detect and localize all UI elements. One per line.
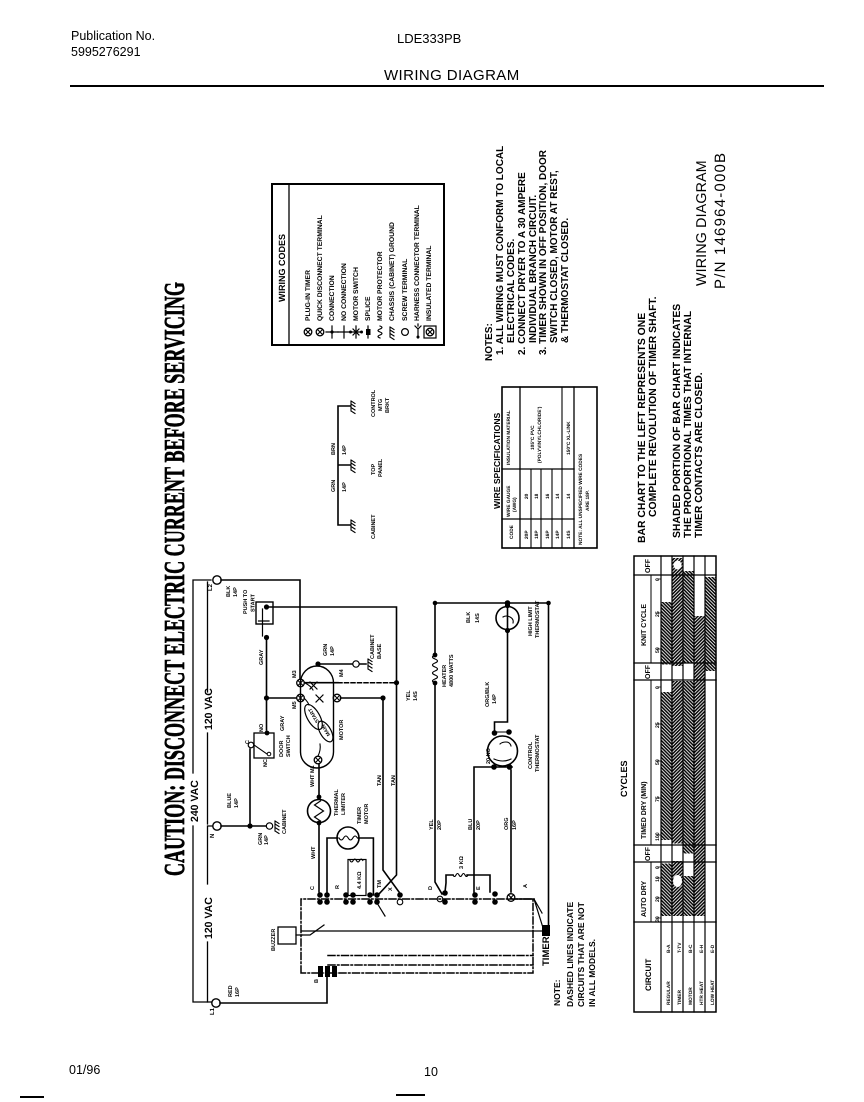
svg-text:E-H: E-H bbox=[699, 944, 705, 953]
svg-text:20P: 20P bbox=[476, 820, 482, 830]
svg-text:14P: 14P bbox=[233, 587, 239, 597]
svg-text:START: START bbox=[308, 707, 321, 724]
svg-text:BLK: BLK bbox=[466, 612, 472, 623]
svg-text:INSULATION MATERIAL: INSULATION MATERIAL bbox=[506, 410, 512, 465]
svg-text:HARNESS CONNECTOR TERMINAL: HARNESS CONNECTOR TERMINAL bbox=[414, 205, 421, 321]
svg-text:M3: M3 bbox=[292, 670, 298, 678]
svg-text:BLK: BLK bbox=[226, 586, 232, 597]
svg-text:CIRCUIT: CIRCUIT bbox=[644, 958, 653, 991]
svg-text:TM: TM bbox=[377, 880, 383, 888]
svg-text:MOTOR SWITCH: MOTOR SWITCH bbox=[353, 267, 360, 321]
svg-text:TIMER: TIMER bbox=[541, 936, 552, 966]
svg-text:CODE: CODE bbox=[509, 524, 515, 539]
svg-text:B: B bbox=[314, 979, 320, 983]
svg-text:1. ALL WIRING MUST CONFORM TO: 1. ALL WIRING MUST CONFORM TO LOCAL bbox=[495, 146, 506, 355]
svg-text:LIMITER: LIMITER bbox=[341, 793, 347, 815]
svg-text:TIMER CONTACTS ARE CLOSED.: TIMER CONTACTS ARE CLOSED. bbox=[694, 372, 705, 538]
svg-text:C: C bbox=[245, 740, 251, 744]
svg-text:ARE 18P.: ARE 18P. bbox=[585, 490, 591, 511]
svg-text:TOP: TOP bbox=[371, 463, 377, 475]
svg-text:120 VAC: 120 VAC bbox=[203, 897, 215, 939]
svg-text:NOTES:: NOTES: bbox=[484, 323, 495, 361]
svg-text:BUZZER: BUZZER bbox=[271, 929, 277, 951]
svg-text:C: C bbox=[310, 886, 316, 890]
svg-text:50: 50 bbox=[655, 647, 661, 653]
svg-text:START: START bbox=[251, 593, 257, 612]
svg-text:3. TIMER SHOWN IN OFF POSITION: 3. TIMER SHOWN IN OFF POSITION, DOOR bbox=[538, 149, 549, 355]
svg-text:NOTE: ALL UNSPECIFIED WIRE COD: NOTE: ALL UNSPECIFIED WIRE CODES bbox=[578, 453, 584, 545]
svg-text:14P: 14P bbox=[342, 445, 348, 455]
svg-text:20 NO: 20 NO bbox=[486, 747, 492, 764]
svg-text:SHADED PORTION OF BAR CHART IN: SHADED PORTION OF BAR CHART INDICATES bbox=[672, 304, 683, 538]
svg-text:D: D bbox=[428, 886, 434, 890]
svg-text:CIRCUITS THAT ARE NOT: CIRCUITS THAT ARE NOT bbox=[576, 901, 586, 1007]
svg-text:E-D: E-D bbox=[710, 944, 716, 953]
svg-text:CHASSIS (CABINET) GROUND: CHASSIS (CABINET) GROUND bbox=[389, 222, 396, 321]
svg-text:PANEL: PANEL bbox=[378, 458, 384, 477]
svg-text:OFF: OFF bbox=[645, 558, 652, 573]
svg-text:4800 WATTS: 4800 WATTS bbox=[449, 654, 455, 687]
svg-text:ELECTRICAL CODES.: ELECTRICAL CODES. bbox=[506, 239, 517, 343]
svg-text:QUICK DISCONNECT TERMINAL: QUICK DISCONNECT TERMINAL bbox=[317, 215, 324, 321]
svg-text:20: 20 bbox=[655, 896, 661, 902]
svg-text:NO CONNECTION: NO CONNECTION bbox=[341, 263, 348, 321]
svg-text:14: 14 bbox=[555, 493, 561, 499]
svg-text:16: 16 bbox=[545, 493, 551, 499]
svg-text:ORG/BLK: ORG/BLK bbox=[485, 682, 491, 707]
svg-text:10: 10 bbox=[655, 876, 661, 882]
svg-text:4.4 KΩ: 4.4 KΩ bbox=[357, 871, 363, 889]
svg-text:CYCLES: CYCLES bbox=[619, 760, 629, 797]
svg-text:M4: M4 bbox=[339, 668, 345, 677]
svg-text:CONTROL: CONTROL bbox=[528, 741, 534, 769]
svg-text:INSULATED TERMINAL: INSULATED TERMINAL bbox=[426, 246, 433, 321]
svg-text:BAR CHART TO THE LEFT REPRESEN: BAR CHART TO THE LEFT REPRESENTS ONE bbox=[637, 313, 648, 543]
svg-text:L1: L1 bbox=[209, 1007, 216, 1015]
svg-text:DASHED LINES INDICATE: DASHED LINES INDICATE bbox=[565, 902, 575, 1007]
svg-text:50: 50 bbox=[655, 759, 661, 765]
svg-text:30: 30 bbox=[655, 916, 661, 922]
svg-text:E: E bbox=[476, 886, 482, 890]
svg-text:WIRING CODES: WIRING CODES bbox=[277, 234, 287, 302]
svg-text:14P: 14P bbox=[234, 798, 240, 808]
svg-text:THERMOSTAT: THERMOSTAT bbox=[535, 600, 541, 638]
svg-text:RED: RED bbox=[228, 985, 234, 997]
svg-text:GRAY: GRAY bbox=[280, 715, 286, 731]
svg-text:NO: NO bbox=[259, 723, 265, 732]
svg-text:(AWG): (AWG) bbox=[512, 497, 518, 512]
svg-text:P/N 146964-000B: P/N 146964-000B bbox=[712, 152, 729, 289]
svg-text:105°C PVC: 105°C PVC bbox=[530, 425, 536, 450]
svg-text:TAN: TAN bbox=[391, 775, 397, 786]
svg-text:HIGH LIMIT: HIGH LIMIT bbox=[528, 606, 534, 636]
svg-text:240 VAC: 240 VAC bbox=[189, 780, 201, 822]
svg-text:GRN: GRN bbox=[323, 644, 329, 656]
svg-text:14P: 14P bbox=[330, 646, 336, 656]
svg-text:CONTROL: CONTROL bbox=[371, 389, 377, 417]
svg-text:BLUE: BLUE bbox=[227, 793, 233, 808]
svg-text:MOTOR PROTECTOR: MOTOR PROTECTOR bbox=[377, 251, 384, 321]
svg-text:20: 20 bbox=[524, 493, 530, 499]
svg-text:PLUG-IN TIMER: PLUG-IN TIMER bbox=[305, 270, 312, 321]
svg-text:120 VAC: 120 VAC bbox=[203, 688, 215, 730]
svg-text:YEL: YEL bbox=[406, 690, 412, 701]
svg-text:TAN: TAN bbox=[377, 775, 383, 786]
svg-text:18P: 18P bbox=[534, 530, 540, 539]
svg-text:0: 0 bbox=[655, 578, 661, 581]
svg-text:CABINET: CABINET bbox=[282, 809, 288, 834]
svg-text:GRAY: GRAY bbox=[259, 649, 265, 665]
svg-text:T-TV: T-TV bbox=[677, 942, 683, 953]
svg-text:WIRE GAUGE: WIRE GAUGE bbox=[506, 485, 512, 517]
svg-text:CAUTION: DISCONNECT ELECTRIC C: CAUTION: DISCONNECT ELECTRIC CURRENT BEF… bbox=[159, 282, 191, 876]
svg-text:COMPLETE REVOLUTION OF TIMER S: COMPLETE REVOLUTION OF TIMER SHAFT. bbox=[648, 296, 659, 517]
svg-text:B-C: B-C bbox=[688, 944, 694, 953]
svg-text:THERMAL: THERMAL bbox=[334, 788, 340, 816]
svg-text:16P: 16P bbox=[512, 820, 518, 830]
svg-text:CABINET: CABINET bbox=[370, 634, 376, 659]
svg-text:GRN: GRN bbox=[331, 480, 337, 492]
svg-text:MOTOR: MOTOR bbox=[364, 804, 370, 824]
svg-text:PUSH TO: PUSH TO bbox=[243, 589, 249, 614]
svg-text:NOTE:: NOTE: bbox=[552, 979, 562, 1006]
svg-text:YEL: YEL bbox=[429, 819, 435, 830]
svg-text:0: 0 bbox=[655, 686, 661, 689]
svg-text:150°C XL-LINK: 150°C XL-LINK bbox=[566, 421, 572, 455]
svg-text:BRKT: BRKT bbox=[385, 397, 391, 413]
svg-text:A: A bbox=[523, 884, 529, 888]
svg-text:MOTOR: MOTOR bbox=[339, 720, 345, 740]
svg-text:CABINET: CABINET bbox=[371, 514, 377, 539]
svg-text:MOTOR: MOTOR bbox=[688, 987, 694, 1005]
svg-text:HEATER: HEATER bbox=[442, 665, 448, 687]
svg-text:14S: 14S bbox=[413, 691, 419, 701]
svg-text:0: 0 bbox=[655, 866, 661, 869]
svg-text:20P: 20P bbox=[437, 820, 443, 830]
svg-text:CONNECTION: CONNECTION bbox=[329, 275, 336, 321]
svg-text:MTG: MTG bbox=[378, 399, 384, 411]
svg-text:OFF: OFF bbox=[645, 664, 652, 679]
svg-text:14S: 14S bbox=[475, 613, 481, 623]
svg-text:16P: 16P bbox=[545, 530, 551, 539]
svg-text:REGULAR: REGULAR bbox=[666, 981, 672, 1005]
svg-text:14P: 14P bbox=[492, 694, 498, 704]
svg-text:14P: 14P bbox=[555, 530, 561, 539]
svg-text:SPLICE: SPLICE bbox=[365, 296, 372, 321]
svg-text:3 KΩ: 3 KΩ bbox=[459, 855, 465, 869]
svg-text:HTR HEAT: HTR HEAT bbox=[699, 981, 705, 1005]
svg-text:N: N bbox=[209, 834, 216, 838]
svg-text:100: 100 bbox=[655, 832, 661, 841]
svg-text:LOW HEAT: LOW HEAT bbox=[710, 980, 716, 1005]
svg-text:14P: 14P bbox=[264, 835, 270, 845]
svg-text:BRN: BRN bbox=[331, 443, 337, 455]
svg-text:THE PROPORTIONAL TIMES THAT IN: THE PROPORTIONAL TIMES THAT INTERNAL bbox=[683, 310, 694, 538]
svg-text:ORG: ORG bbox=[504, 817, 510, 830]
svg-text:(POLYVINYLCHLORIDE’): (POLYVINYLCHLORIDE’) bbox=[537, 406, 543, 463]
svg-text:& THERMOSTAT CLOSED.: & THERMOSTAT CLOSED. bbox=[560, 218, 571, 343]
svg-text:OFF: OFF bbox=[645, 846, 652, 861]
svg-text:KNIT CYCLE: KNIT CYCLE bbox=[641, 604, 648, 646]
svg-text:R: R bbox=[335, 885, 341, 889]
svg-text:SWITCH CLOSED, MOTOR AT REST,: SWITCH CLOSED, MOTOR AT REST, bbox=[549, 170, 560, 343]
svg-text:WHT M1: WHT M1 bbox=[310, 765, 316, 787]
svg-text:DOOR: DOOR bbox=[279, 740, 285, 757]
svg-text:WIRE SPECIFICATIONS: WIRE SPECIFICATIONS bbox=[492, 412, 502, 509]
svg-text:18: 18 bbox=[534, 493, 540, 499]
svg-text:SCREW TERMINAL: SCREW TERMINAL bbox=[402, 259, 409, 321]
svg-text:L2: L2 bbox=[207, 583, 214, 591]
svg-text:X: X bbox=[388, 887, 394, 891]
svg-text:BASE: BASE bbox=[377, 643, 383, 659]
svg-text:WIRING DIAGRAM: WIRING DIAGRAM bbox=[694, 160, 710, 286]
svg-text:75: 75 bbox=[655, 796, 661, 802]
svg-text:BLU: BLU bbox=[468, 819, 474, 830]
svg-text:16P: 16P bbox=[235, 987, 241, 997]
svg-text:THERMOSTAT: THERMOSTAT bbox=[535, 734, 541, 772]
svg-text:NC: NC bbox=[263, 759, 269, 767]
svg-text:IN ALL MODELS.: IN ALL MODELS. bbox=[587, 939, 597, 1007]
svg-text:25: 25 bbox=[655, 611, 661, 617]
svg-text:2. CONNECT DRYER TO A 30 AMPER: 2. CONNECT DRYER TO A 30 AMPERE bbox=[517, 172, 528, 355]
svg-text:SWITCH: SWITCH bbox=[286, 735, 292, 757]
svg-text:25: 25 bbox=[655, 722, 661, 728]
svg-text:TIMER: TIMER bbox=[677, 990, 683, 1005]
svg-text:M5: M5 bbox=[292, 701, 298, 709]
svg-text:B-A: B-A bbox=[666, 944, 672, 953]
svg-text:14P: 14P bbox=[342, 482, 348, 492]
svg-text:20P: 20P bbox=[524, 530, 530, 539]
svg-text:TIMER: TIMER bbox=[357, 807, 363, 824]
svg-text:14: 14 bbox=[566, 493, 572, 499]
svg-text:WHT: WHT bbox=[311, 846, 317, 859]
svg-text:14S: 14S bbox=[566, 530, 572, 539]
svg-text:AUTO DRY: AUTO DRY bbox=[641, 881, 648, 918]
svg-text:TIMED DRY (MIN): TIMED DRY (MIN) bbox=[640, 781, 648, 839]
